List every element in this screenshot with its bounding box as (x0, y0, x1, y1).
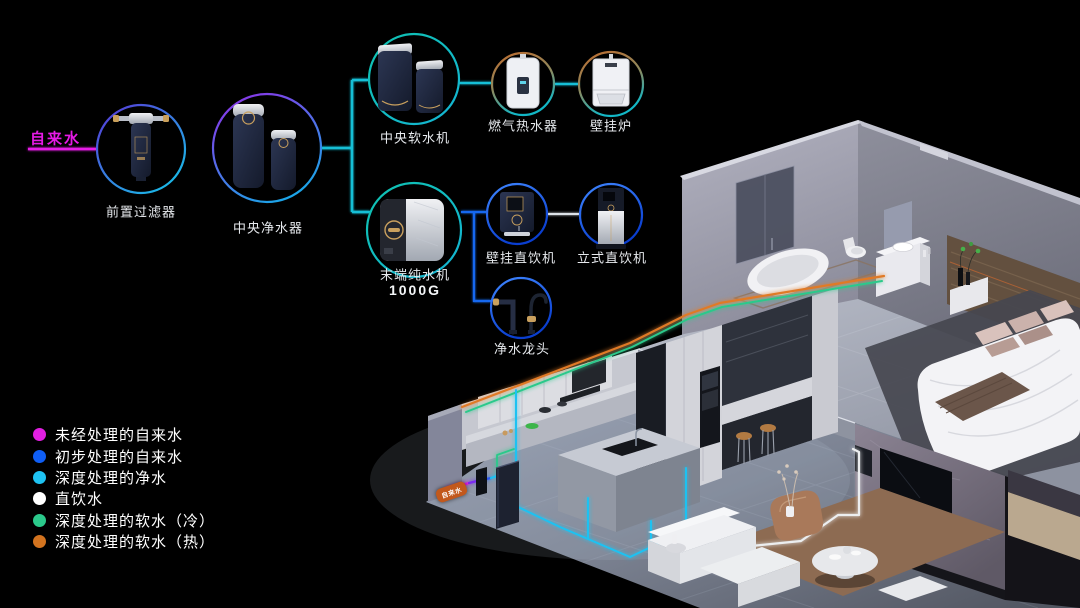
legend-label: 深度处理的软水（热） (55, 531, 215, 552)
legend-item-soft-cold: 深度处理的软水（冷） (33, 510, 215, 531)
ring-central-purifier (213, 94, 321, 202)
floor-purifier-unit (496, 461, 519, 529)
node-label-boiler: 壁挂炉 (590, 116, 632, 135)
node-label-softener: 中央软水机 (380, 128, 450, 147)
node-label-ro-machine: 末端纯水机 (380, 265, 450, 284)
green-bowl (526, 423, 539, 429)
flow-diagram (28, 34, 643, 338)
legend-label: 初步处理的自来水 (55, 446, 183, 467)
gas-heater-device (507, 54, 539, 108)
ring-faucet (491, 278, 551, 338)
vase (958, 268, 963, 286)
coffee-table (812, 546, 878, 588)
wall-prefilter-box (476, 467, 487, 496)
infographic-canvas: 自来水 前置过滤器 中央净水器 中央软水机 燃气热水器 壁挂炉 末端纯水机 10… (0, 0, 1080, 608)
faucet-device (493, 295, 546, 334)
wall-dispenser-device (500, 192, 534, 236)
legend-item-purified: 深度处理的净水 (33, 467, 215, 488)
flow-device-illustrations (113, 43, 629, 334)
pot (539, 407, 551, 413)
basin (893, 243, 913, 252)
ro-machine-device (380, 199, 444, 261)
boiler-device (593, 54, 629, 106)
node-label-gas-heater: 燃气热水器 (488, 116, 558, 135)
flow-rings (97, 34, 643, 338)
legend-item-primary: 初步处理的自来水 (33, 445, 215, 466)
central-purifier-device (233, 104, 296, 190)
legend-dot-soft-hot (33, 535, 46, 548)
plant-vase (786, 506, 794, 517)
node-label-wall-dispenser: 壁挂直饮机 (486, 248, 556, 267)
legend-dot-drinking (33, 492, 46, 505)
legend: 未经处理的自来水 初步处理的自来水 深度处理的净水 直饮水 深度处理的软水（冷）… (33, 424, 215, 552)
branch-bracket (321, 80, 370, 212)
prefilter-device (113, 113, 169, 181)
softener-device (378, 43, 443, 113)
node-label-faucet: 净水龙头 (494, 339, 550, 358)
pot (557, 402, 567, 407)
node-label-floor-dispenser: 立式直饮机 (577, 248, 647, 267)
legend-label: 深度处理的净水 (55, 467, 167, 488)
legend-item-untreated: 未经处理的自来水 (33, 424, 215, 445)
source-label: 自来水 (30, 128, 81, 149)
legend-label: 直饮水 (55, 488, 103, 509)
legend-item-drinking: 直饮水 (33, 488, 215, 509)
legend-item-soft-hot: 深度处理的软水（热） (33, 531, 215, 552)
node-label-central-purifier: 中央净水器 (233, 218, 303, 237)
house-illustration (370, 120, 1080, 608)
floor-dispenser-device (596, 188, 626, 249)
legend-dot-untreated (33, 428, 46, 441)
legend-dot-purified (33, 471, 46, 484)
legend-dot-soft-cold (33, 514, 46, 527)
end-pillar (812, 288, 838, 440)
node-label-prefilter: 前置过滤器 (106, 202, 176, 221)
legend-dot-primary (33, 450, 46, 463)
legend-label: 未经处理的自来水 (55, 424, 183, 445)
legend-label: 深度处理的软水（冷） (55, 510, 215, 531)
node-sublabel-ro-machine: 1000G (389, 282, 441, 298)
vase (966, 272, 970, 285)
